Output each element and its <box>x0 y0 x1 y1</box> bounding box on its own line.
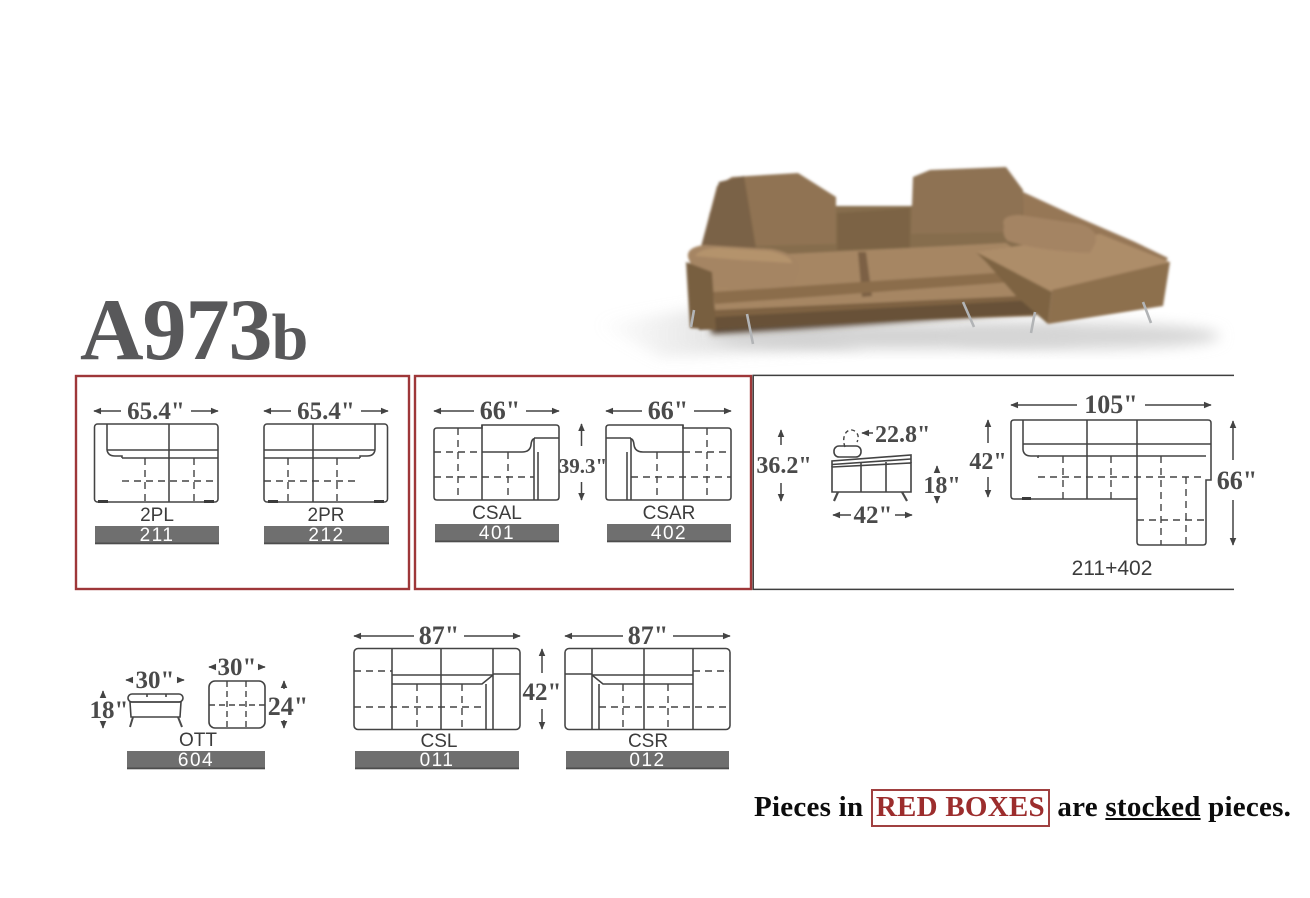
svg-text:011: 011 <box>420 750 455 771</box>
svg-text:211+402: 211+402 <box>1072 557 1153 580</box>
svg-text:42": 42" <box>854 502 893 529</box>
svg-text:24": 24" <box>268 692 308 721</box>
svg-text:66": 66" <box>480 396 520 425</box>
svg-text:402: 402 <box>651 523 687 544</box>
svg-text:211: 211 <box>140 525 175 546</box>
svg-text:22.8": 22.8" <box>875 422 930 448</box>
svg-text:65.4": 65.4" <box>297 398 355 425</box>
svg-text:2PR: 2PR <box>308 505 345 526</box>
svg-text:65.4": 65.4" <box>127 398 185 425</box>
svg-text:2PL: 2PL <box>140 505 174 526</box>
svg-text:30": 30" <box>136 667 175 694</box>
svg-text:105": 105" <box>1084 390 1137 419</box>
svg-text:18": 18" <box>90 697 129 724</box>
svg-text:42": 42" <box>523 679 562 706</box>
svg-text:CSAR: CSAR <box>643 503 696 524</box>
svg-text:212: 212 <box>308 525 344 546</box>
svg-text:66": 66" <box>648 396 688 425</box>
svg-text:401: 401 <box>479 523 515 544</box>
svg-text:66": 66" <box>1217 466 1257 495</box>
svg-text:012: 012 <box>629 750 665 771</box>
svg-text:36.2": 36.2" <box>756 453 811 479</box>
svg-text:87": 87" <box>419 621 459 650</box>
svg-text:18": 18" <box>923 473 960 499</box>
svg-text:39.3": 39.3" <box>559 454 607 478</box>
svg-text:604: 604 <box>178 750 214 771</box>
svg-text:42": 42" <box>969 449 1006 475</box>
svg-text:87": 87" <box>628 621 668 650</box>
svg-text:OTT: OTT <box>179 730 217 751</box>
svg-text:CSL: CSL <box>421 731 458 752</box>
svg-text:CSAL: CSAL <box>472 503 522 524</box>
svg-text:30": 30" <box>218 654 257 681</box>
svg-text:CSR: CSR <box>628 731 668 752</box>
